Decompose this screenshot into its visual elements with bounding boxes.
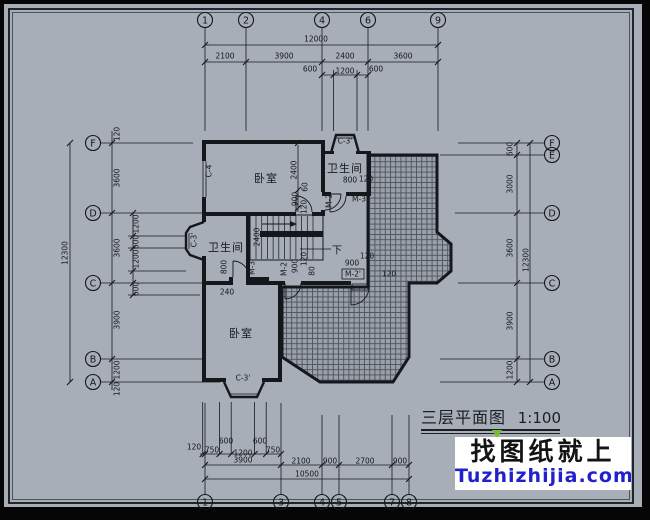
dim-label: 120: [382, 270, 397, 279]
dim-label: 3600: [506, 238, 515, 257]
dim-label: 12300: [522, 248, 531, 272]
axis-label: 8: [406, 497, 412, 508]
dim-label: 3600: [113, 168, 122, 187]
dim-label: 3900: [506, 311, 515, 330]
axis-label: A: [90, 377, 97, 388]
room-label: 卧室: [229, 326, 253, 340]
axis-label: E: [549, 150, 555, 161]
watermark-slogan: 找图纸就上: [455, 438, 631, 466]
dim-label: 800: [220, 260, 229, 275]
axis-label: D: [548, 208, 555, 219]
drawing-title: 三层平面图 1:100: [421, 404, 561, 428]
dim-label: 10500: [295, 470, 319, 479]
title-underline: [421, 429, 560, 431]
dim-label: C-3': [236, 374, 251, 383]
axis-label: F: [90, 138, 95, 149]
axis-label: C: [549, 278, 556, 289]
axis-label: C: [90, 278, 97, 289]
dim-label: 60: [301, 182, 310, 192]
dim-label: M-2': [345, 270, 361, 279]
bay-window: [224, 382, 264, 397]
dim-label: 600: [253, 437, 268, 446]
drawing-scale: 1:100: [518, 409, 561, 427]
dim-label: 2400: [253, 227, 262, 246]
dim-label: 3600: [113, 238, 122, 257]
axis-label: 9: [435, 15, 441, 26]
dim-label: 750: [205, 446, 220, 455]
axis-label: 1: [202, 15, 208, 26]
dim-label: 2400: [335, 52, 354, 61]
axis-label: 4: [319, 497, 325, 508]
dim-label: 600: [219, 437, 234, 446]
dim-label: 120: [360, 252, 375, 261]
axis-label: B: [549, 354, 556, 365]
dim-label: 12000: [304, 35, 328, 44]
dim-label: 240: [220, 288, 235, 297]
dim-label: 750: [266, 446, 281, 455]
room-label: 卧室: [254, 171, 278, 185]
dim-label: 1200: [132, 249, 141, 268]
dim-label: 120: [113, 382, 122, 397]
dim-label: 120: [187, 443, 202, 452]
dim-label: M-3: [248, 261, 257, 275]
axis-label: 7: [389, 497, 395, 508]
watermark-site: Tuzhizhijia.com: [455, 466, 631, 487]
dim-label: M-3: [352, 195, 366, 204]
room-label: 卫生间: [327, 161, 363, 175]
dim-label: 600: [506, 142, 515, 157]
dim-label: 120: [113, 127, 122, 142]
dim-label: 120: [300, 200, 309, 215]
dim-label: C-3': [190, 233, 199, 248]
dim-label: 3900: [113, 310, 122, 329]
axis-label: 6: [365, 15, 371, 26]
dim-label: 3000: [506, 174, 515, 193]
axis-label: 3: [278, 497, 284, 508]
watermark: 找图纸就上 Tuzhizhijia.com: [455, 437, 631, 490]
drawing-canvas: 12469134578FDCBAFEDCBA120002100390024003…: [0, 0, 650, 520]
dim-label: 600: [132, 235, 141, 250]
axis-label: B: [90, 354, 97, 365]
dim-label: 600: [369, 65, 384, 74]
dim-label: M-2: [280, 262, 289, 276]
dim-label: 2700: [355, 457, 374, 466]
dim-label: 120: [359, 175, 374, 184]
dim-label: 800: [343, 176, 358, 185]
dim-label: C-3': [338, 137, 353, 146]
stair-down-label: 下: [332, 246, 342, 257]
dim-label: 1200: [506, 360, 515, 379]
dim-label: 3900: [274, 52, 293, 61]
drawing-title-text: 三层平面图: [421, 404, 506, 428]
dim-label: 1200: [132, 214, 141, 233]
axis-label: 4: [319, 15, 325, 26]
dim-label: 2400: [290, 160, 299, 179]
axis-label: 2: [243, 15, 249, 26]
dim-label: C-4: [205, 164, 214, 177]
dim-label: 900: [291, 192, 300, 207]
dim-label: 120: [300, 252, 309, 267]
dim-label: 1200: [335, 67, 354, 76]
dim-label: 600: [303, 65, 318, 74]
title-underline-thin: [421, 433, 560, 434]
dim-label: 3600: [393, 52, 412, 61]
dim-label: 12300: [61, 241, 70, 265]
dim-label: 3900: [233, 456, 252, 465]
dim-label: 900: [323, 457, 338, 466]
dim-label: 2100: [215, 52, 234, 61]
dim-label: 600: [132, 282, 141, 297]
room-label: 卫生间: [208, 240, 244, 254]
axis-label: A: [549, 377, 556, 388]
dim-label: 900: [345, 259, 360, 268]
axis-label: 5: [336, 497, 342, 508]
dim-label: M-2: [325, 194, 334, 208]
dim-label: 2100: [291, 457, 310, 466]
dim-label: 80: [308, 266, 317, 276]
dim-label: 1200: [113, 360, 122, 379]
axis-label: D: [89, 208, 96, 219]
dim-label: 900: [393, 457, 408, 466]
dim-label: 900: [291, 259, 300, 274]
axis-label: 1: [202, 497, 208, 508]
